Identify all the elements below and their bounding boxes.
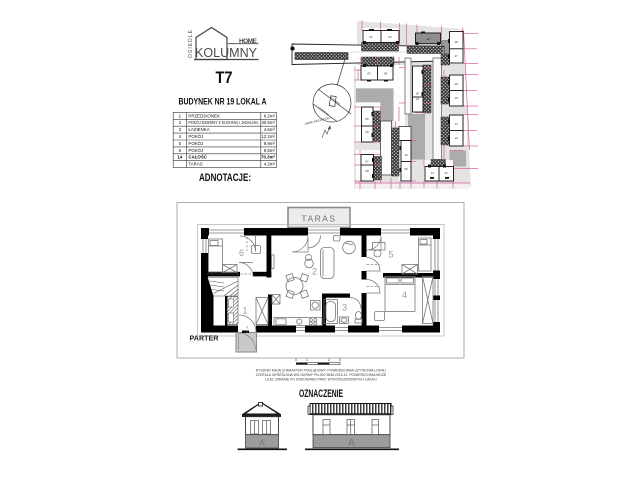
svg-text:2: 2 <box>312 267 317 277</box>
svg-text:CAŁOŚĆ: CAŁOŚĆ <box>188 155 207 160</box>
svg-text:01: 01 <box>369 35 373 39</box>
svg-text:4: 4 <box>402 290 407 300</box>
svg-text:TARAS: TARAS <box>188 162 202 167</box>
svg-text:21: 21 <box>416 97 420 101</box>
svg-text:15: 15 <box>454 96 458 100</box>
svg-text:4.6m²: 4.6m² <box>264 127 276 132</box>
svg-text:6: 6 <box>239 248 244 258</box>
svg-text:POKÓJ: POKÓJ <box>188 141 203 146</box>
svg-text:09: 09 <box>404 167 408 171</box>
svg-text:3: 3 <box>342 303 347 313</box>
svg-text:10: 10 <box>404 153 408 157</box>
svg-text:OZNACZENIE: OZNACZENIE <box>299 388 343 400</box>
svg-text:POKÓJ: POKÓJ <box>188 134 203 139</box>
svg-text:5: 5 <box>388 250 393 260</box>
svg-text:14: 14 <box>454 122 458 126</box>
svg-text:OSIEDLE: OSIEDLE <box>188 29 194 58</box>
svg-text:POKÓJ DZIENNY Z KUCHNIĄ I JADA: POKÓJ DZIENNY Z KUCHNIĄ I JADALNIĄ <box>188 120 258 125</box>
svg-text:07: 07 <box>365 160 369 164</box>
svg-text:1: 1 <box>242 306 247 316</box>
svg-text:03: 03 <box>367 72 371 76</box>
svg-text:1: 1 <box>306 358 308 362</box>
svg-text:12: 12 <box>444 171 448 175</box>
svg-text:PRZEDSIONEK: PRZEDSIONEK <box>188 113 220 118</box>
svg-text:TARAS: TARAS <box>301 214 336 224</box>
svg-text:POKÓJ: POKÓJ <box>188 148 203 153</box>
svg-text:04: 04 <box>384 72 388 76</box>
svg-text:18: 18 <box>454 40 458 44</box>
svg-text:9.5m²: 9.5m² <box>264 148 276 153</box>
svg-text:13: 13 <box>454 136 458 140</box>
svg-text:PARTER: PARTER <box>190 334 220 343</box>
svg-text:19: 19 <box>426 37 430 41</box>
svg-text:ŁAZIENKA: ŁAZIENKA <box>188 127 209 132</box>
svg-text:4.2m²: 4.2m² <box>264 162 276 167</box>
svg-text:05: 05 <box>365 117 369 121</box>
svg-text:A: A <box>259 438 265 448</box>
svg-text:ADNOTACJE:: ADNOTACJE: <box>199 172 251 184</box>
svg-text:11: 11 <box>431 171 434 175</box>
svg-text:6.2m²: 6.2m² <box>264 113 276 118</box>
svg-text:2: 2 <box>328 358 330 362</box>
svg-text:16: 16 <box>454 82 458 86</box>
svg-text:3: 3 <box>339 358 341 362</box>
svg-text:30.5m²: 30.5m² <box>261 120 275 125</box>
svg-text:06: 06 <box>365 130 369 134</box>
svg-text:70.3m²: 70.3m² <box>261 155 275 160</box>
svg-text:BUDYNEK NR 19 LOKAL A: BUDYNEK NR 19 LOKAL A <box>179 97 267 108</box>
svg-text:ZOSTAŁA OKREŚLONA WG NORMY PN-: ZOSTAŁA OKREŚLONA WG NORMY PN-ISO 9836:2… <box>256 372 387 377</box>
svg-text:02: 02 <box>388 35 392 39</box>
svg-text:KOLUMNY: KOLUMNY <box>195 45 257 60</box>
svg-text:08: 08 <box>365 169 369 173</box>
svg-text:9.9m²: 9.9m² <box>264 141 276 146</box>
svg-text:A: A <box>348 438 355 449</box>
svg-text:17: 17 <box>454 54 458 58</box>
svg-text:14: 14 <box>177 155 182 160</box>
svg-text:12.2m²: 12.2m² <box>261 134 275 139</box>
svg-text:RYSUNKI MAJĄ CHARAKTER POGLĄDO: RYSUNKI MAJĄ CHARAKTER POGLĄDOWY. POWIER… <box>256 368 386 373</box>
svg-text:ULEC ZMIANIE PO DOKONANIU PRAC: ULEC ZMIANIE PO DOKONANIU PRAC WYKOŃCZEN… <box>265 378 376 382</box>
svg-text:0: 0 <box>295 358 297 362</box>
svg-text:20: 20 <box>416 92 420 96</box>
svg-text:HOME: HOME <box>239 38 258 45</box>
svg-text:T7: T7 <box>216 68 233 87</box>
